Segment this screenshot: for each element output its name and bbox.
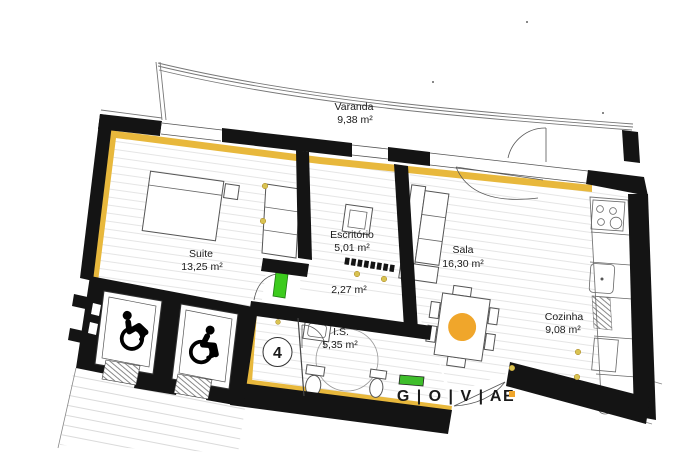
room-label-sala: Sala: [452, 244, 473, 256]
unit-number: 4: [273, 345, 282, 362]
logo-green-mark: [399, 375, 424, 386]
logo-text: G | O | V | AE: [397, 388, 515, 405]
logo-orange-mark: [509, 391, 515, 397]
room-area-hall: 2,27 m²: [331, 284, 367, 296]
room-label-cozinha: Cozinha: [545, 311, 584, 323]
wardrobe: [262, 184, 300, 258]
floor-plan-page: Varanda 9,38 m² Suite 13,25 m² Escritóri…: [0, 0, 686, 453]
room-area-is: 5,35 m²: [322, 339, 358, 351]
room-area-varanda: 9,38 m²: [337, 114, 373, 126]
room-label-suite: Suite: [189, 248, 213, 260]
room-area-cozinha: 9,08 m²: [545, 324, 581, 336]
room-label-escritorio: Escritório: [330, 229, 374, 241]
room-area-suite: 13,25 m²: [181, 261, 223, 273]
room-area-escritorio: 5,01 m²: [334, 242, 370, 254]
specks: [432, 21, 604, 114]
floor-plan-drawing: Varanda 9,38 m² Suite 13,25 m² Escritóri…: [0, 0, 686, 453]
draining-board: [592, 296, 612, 330]
room-area-sala: 16,30 m²: [442, 258, 484, 270]
room-label-varanda: Varanda: [335, 101, 374, 113]
suite-door-leaf: [273, 272, 288, 298]
unit-badge: 4: [263, 338, 292, 367]
room-label-is: I.S.: [333, 326, 349, 338]
